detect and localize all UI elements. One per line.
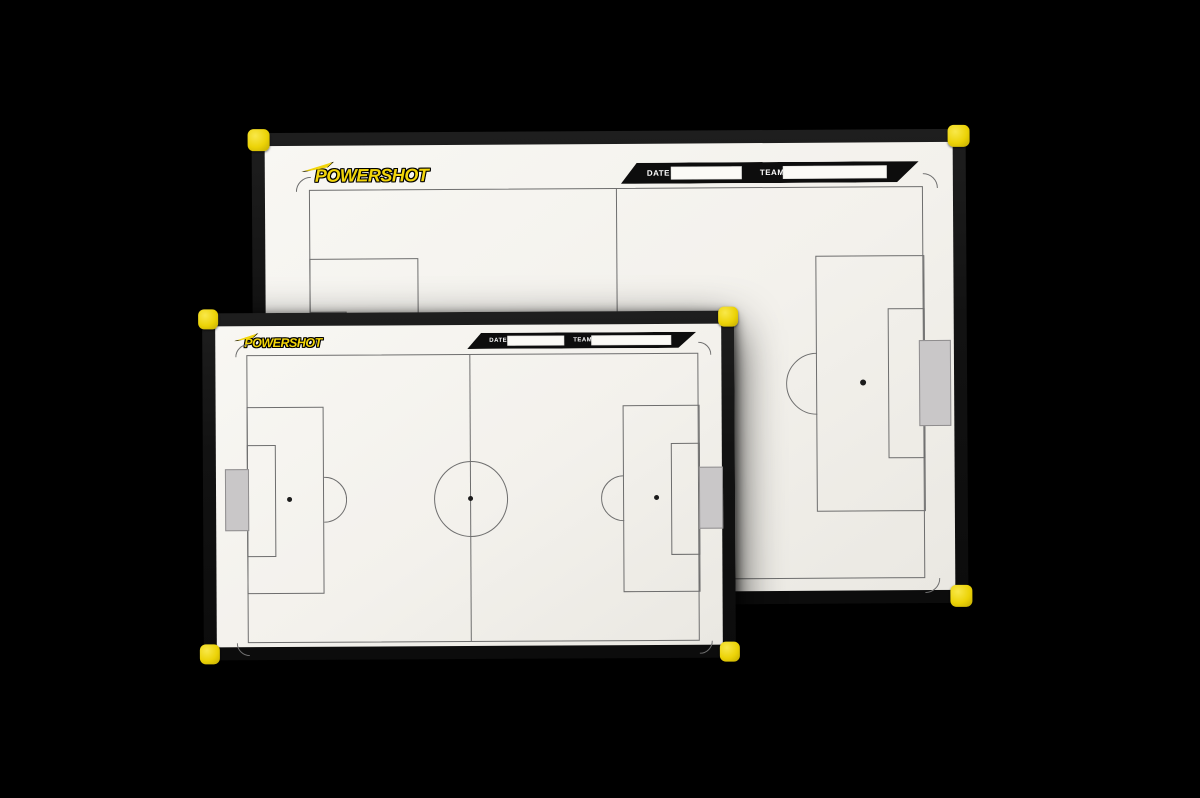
front-team-field bbox=[591, 335, 671, 345]
front-board-surface: POWERSHOT DATE TEAM bbox=[215, 324, 723, 648]
penalty-spot-right bbox=[860, 379, 866, 385]
yellow-corner-cap bbox=[720, 642, 740, 662]
corner-arc-br bbox=[910, 563, 940, 593]
front-header-banner: DATE TEAM bbox=[467, 332, 696, 349]
back-date-field bbox=[671, 166, 742, 179]
goal-left bbox=[225, 469, 249, 531]
product-photo-stage: POWERSHOT DATE TEAM bbox=[0, 0, 1200, 798]
back-brand-text: POWERSHOT bbox=[315, 165, 429, 186]
corner-arc-br bbox=[687, 628, 713, 654]
back-header-banner: DATE TEAM bbox=[621, 161, 919, 184]
back-brand-logo: POWERSHOT bbox=[315, 165, 429, 187]
yellow-corner-cap bbox=[248, 129, 270, 151]
yellow-corner-cap bbox=[950, 585, 972, 607]
back-team-label: TEAM bbox=[760, 168, 785, 177]
back-date-label: DATE bbox=[647, 169, 670, 178]
goal-right bbox=[699, 467, 723, 529]
yellow-corner-cap bbox=[718, 307, 738, 327]
yellow-corner-cap bbox=[198, 309, 218, 329]
corner-arc-bl bbox=[237, 630, 263, 656]
goal-area-left bbox=[247, 445, 277, 557]
front-team-label: TEAM bbox=[573, 337, 592, 343]
goal-area-right bbox=[671, 443, 701, 555]
front-brand-text: POWERSHOT bbox=[244, 336, 322, 350]
goal-right bbox=[919, 340, 952, 426]
penalty-spot-right bbox=[654, 495, 659, 500]
front-date-field bbox=[507, 335, 564, 345]
front-tactic-board: POWERSHOT DATE TEAM bbox=[202, 311, 736, 661]
corner-arc-tr bbox=[685, 342, 711, 368]
yellow-corner-cap bbox=[948, 125, 970, 147]
front-brand-logo: POWERSHOT bbox=[244, 336, 322, 350]
front-date-label: DATE bbox=[489, 338, 507, 344]
yellow-corner-cap bbox=[200, 644, 220, 664]
penalty-spot-left bbox=[287, 497, 292, 502]
front-pitch bbox=[246, 353, 700, 643]
back-team-field bbox=[783, 165, 887, 179]
center-spot bbox=[468, 496, 473, 501]
corner-arc-tr bbox=[908, 173, 938, 203]
